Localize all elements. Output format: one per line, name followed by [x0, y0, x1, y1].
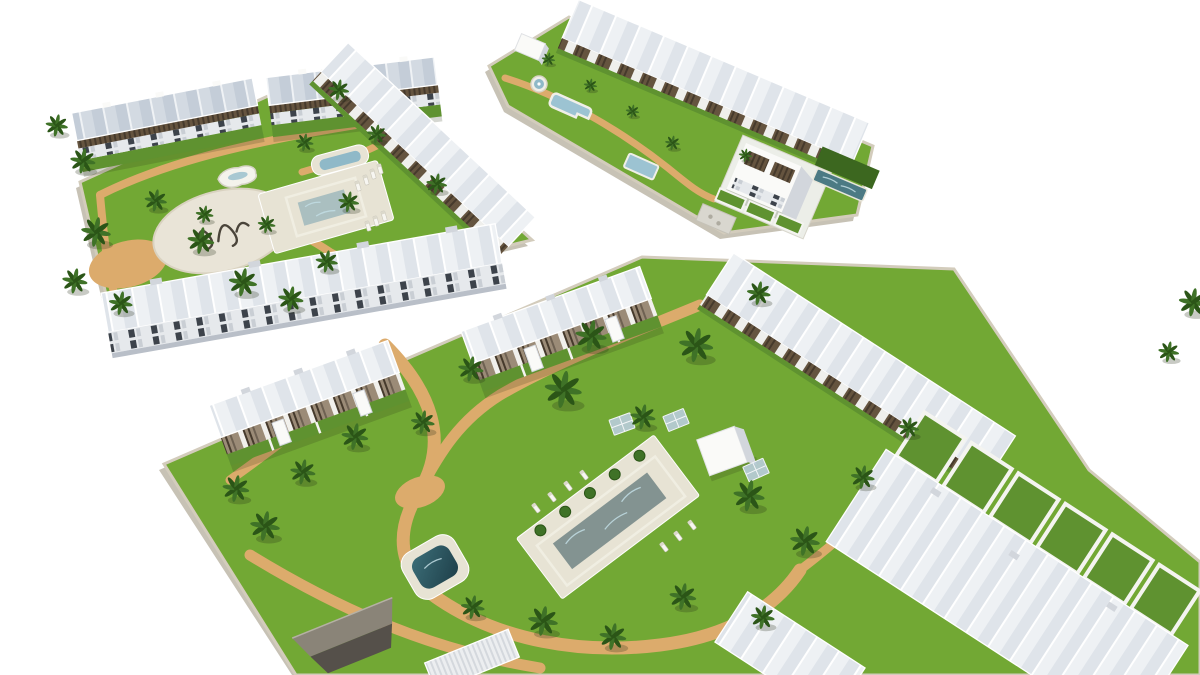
- fountain: [531, 76, 547, 92]
- render-canvas: Aerial 3D render of a white Mediterranea…: [0, 0, 1200, 675]
- aerial-render-svg: Aerial 3D render of a white Mediterranea…: [0, 0, 1200, 675]
